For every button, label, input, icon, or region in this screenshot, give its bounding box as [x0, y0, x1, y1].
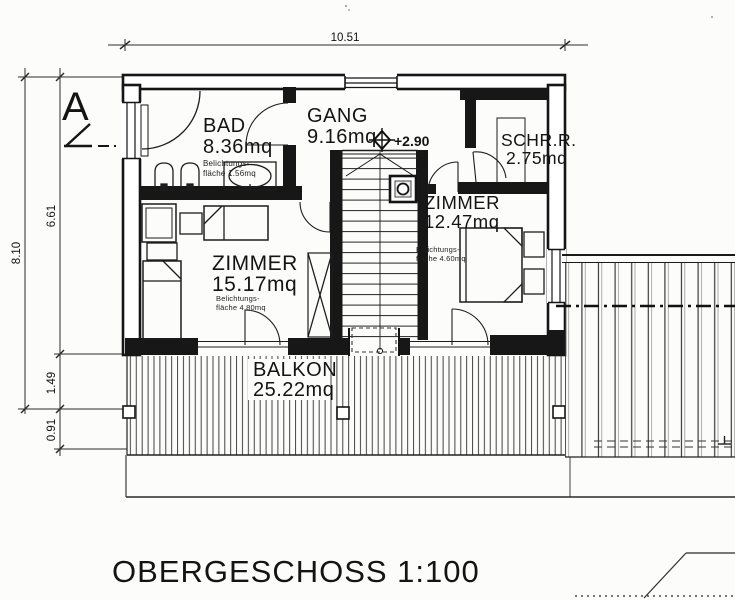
bidet-fixture	[181, 163, 199, 190]
dim-balcony-depth: 1.49	[46, 372, 58, 394]
scan-noise	[345, 5, 713, 18]
nightstand	[524, 269, 544, 294]
door-zimmer2-hall	[300, 202, 330, 232]
double-bed	[460, 228, 544, 302]
room-name-zimmer2: ZIMMER	[212, 252, 298, 275]
wall-east	[548, 85, 565, 355]
single-bed-horizontal	[204, 206, 268, 240]
nightstand	[147, 243, 177, 260]
dim-width-total: 10.51	[331, 32, 360, 44]
labels: 10.51 8.10 6.61 1.49 0.91 A +2.90 BAD 8.…	[11, 32, 576, 589]
room-area-zimmer1: 12.47mq	[424, 211, 500, 232]
room-area-balkon: 25.22mq	[253, 379, 334, 401]
section-label: A	[62, 85, 89, 129]
room-area-bad: 8.36mq	[203, 136, 273, 158]
room-area-schrank: 2.75mq	[506, 148, 567, 168]
room-note-zimmer2-1: Belichtungs-	[216, 294, 260, 303]
dim-height-total: 8.10	[11, 242, 23, 264]
nightstand	[524, 232, 544, 257]
room-note-zimmer1-2: fläche 4.60mq	[416, 254, 466, 263]
balcony	[123, 356, 565, 455]
dim-height-main: 6.61	[46, 205, 58, 227]
floor-plan-drawing: 10.51 8.10 6.61 1.49 0.91 A +2.90 BAD 8.…	[0, 0, 735, 600]
dim-overhang: 0.91	[46, 419, 58, 441]
room-area-zimmer2: 15.17mq	[212, 273, 297, 296]
room-name-schrank: SCHR.R.	[501, 130, 576, 150]
wc-fixture	[155, 163, 173, 190]
room-note-bad-2: fläche 1.56mq	[203, 169, 256, 178]
level-annotation: +2.90	[394, 133, 430, 149]
room-note-zimmer1-1: Belichtungs-	[416, 245, 460, 254]
chimney	[390, 176, 416, 202]
room-name-bad: BAD	[203, 115, 246, 137]
staircase	[342, 150, 418, 356]
ground-outline	[126, 455, 735, 497]
room-area-gang: 9.16mq	[307, 126, 377, 148]
room-name-balkon: BALKON	[253, 359, 337, 381]
wardrobe	[308, 253, 332, 337]
shower-arc	[142, 91, 200, 149]
door-zimmer2-balcony	[198, 310, 288, 347]
door-schrankraum	[473, 152, 506, 182]
deck-right	[556, 255, 735, 457]
room-name-gang: GANG	[307, 105, 368, 127]
floor-plan-page: 10.51 8.10 6.61 1.49 0.91 A +2.90 BAD 8.…	[0, 0, 735, 600]
dresser	[142, 204, 176, 242]
room-name-zimmer1: ZIMMER	[424, 192, 500, 213]
room-note-bad-1: Belichtungs-	[203, 159, 250, 168]
balcony-post	[123, 406, 135, 418]
balcony-post	[337, 407, 349, 419]
adjacent-drawing-fragment	[575, 553, 735, 598]
wall-north	[123, 75, 565, 89]
drawing-title: OBERGESCHOSS 1:100	[112, 554, 480, 589]
room-note-zimmer2-2: fläche 4.80mq	[216, 303, 266, 312]
nightstand	[180, 213, 202, 234]
balcony-post	[553, 406, 565, 418]
